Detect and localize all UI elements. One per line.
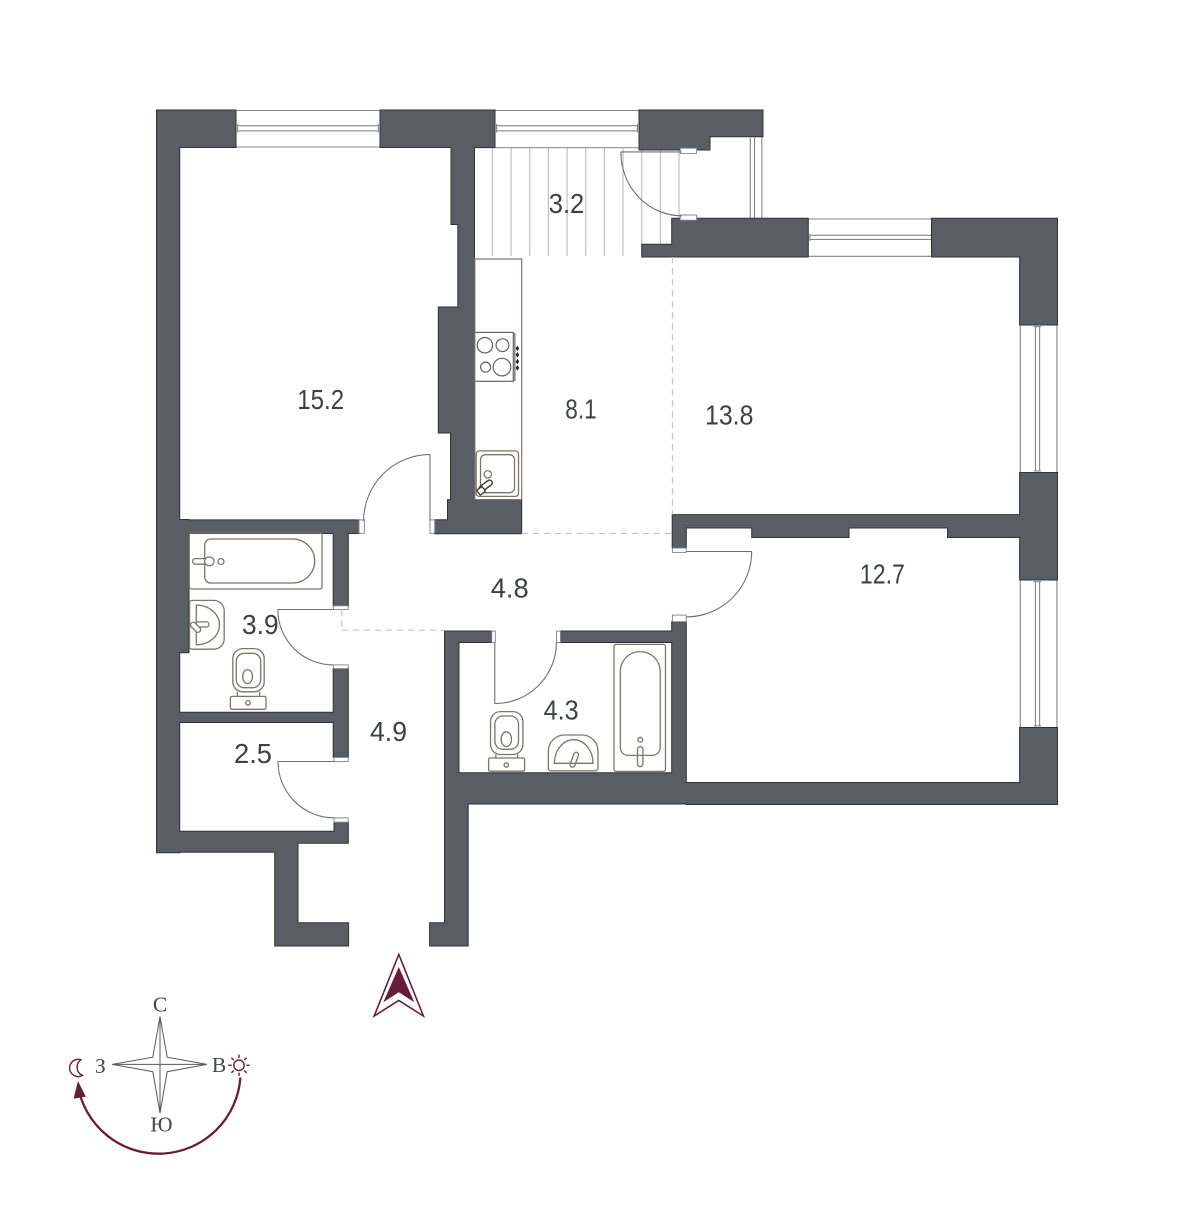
svg-text:15.2: 15.2 [297,384,344,415]
svg-text:4.8: 4.8 [491,573,529,604]
svg-text:12.7: 12.7 [860,559,905,590]
svg-text:8.1: 8.1 [565,394,596,425]
svg-text:4.3: 4.3 [544,694,579,725]
svg-text:С: С [153,992,167,1016]
svg-text:4.9: 4.9 [370,716,407,747]
svg-text:3.9: 3.9 [242,609,279,640]
svg-text:Ю: Ю [150,1112,172,1136]
svg-text:В: В [212,1053,226,1077]
svg-text:3.2: 3.2 [549,188,585,219]
svg-text:13.8: 13.8 [705,400,753,431]
svg-text:2.5: 2.5 [234,738,272,769]
svg-text:З: З [95,1054,106,1078]
